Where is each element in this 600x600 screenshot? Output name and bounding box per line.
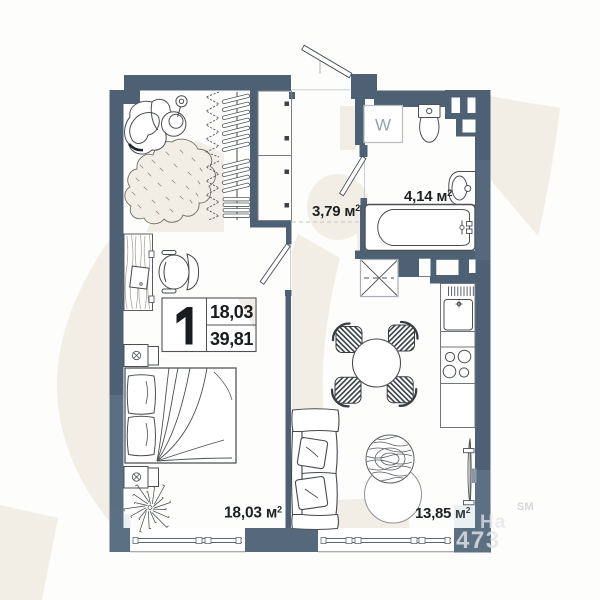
svg-text:4,14 м2: 4,14 м2 [404, 188, 452, 205]
svg-text:18,03 м2: 18,03 м2 [224, 505, 282, 522]
svg-text:W: W [375, 116, 391, 135]
svg-text:473: 473 [456, 527, 501, 554]
svg-text:SM: SM [517, 501, 534, 513]
svg-text:39,81: 39,81 [210, 329, 253, 349]
svg-text:3,79 м2: 3,79 м2 [312, 203, 360, 220]
svg-text:18,03: 18,03 [210, 302, 253, 322]
